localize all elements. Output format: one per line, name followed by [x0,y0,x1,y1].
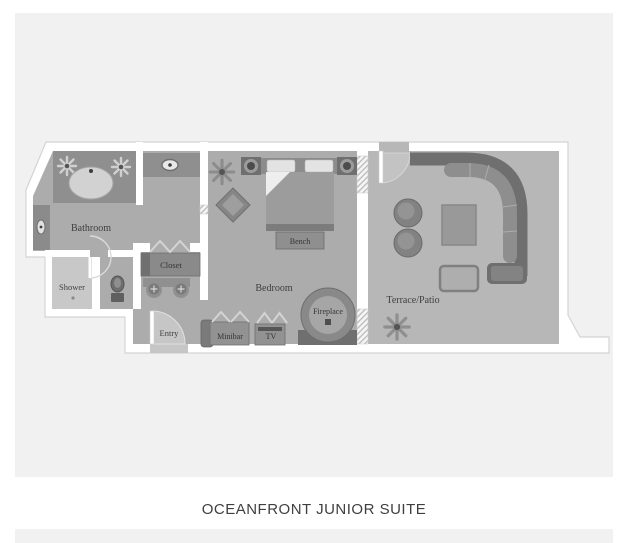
wall [45,250,90,257]
terrace-label: Terrace/Patio [386,295,439,306]
page: Bathroom Shower Closet Entry Minibar TV … [0,0,628,543]
sink-drain-icon [168,163,172,167]
wall [108,250,133,257]
minibar-label: Minibar [217,332,243,341]
wall [136,142,143,205]
bench-label: Bench [290,237,310,246]
bedroom-label: Bedroom [255,283,292,294]
plant-icon [112,158,130,176]
plant-icon [385,315,409,339]
ottoman-icon [440,266,478,291]
wall [200,243,208,300]
pillow-icon [305,160,333,172]
chair-cushion [398,233,415,250]
plant-icon [58,157,76,175]
bed-footboard [266,224,334,231]
nook-basin-drain-icon [40,226,43,229]
floor-plan-figure: Bathroom Shower Closet Entry Minibar TV … [0,0,628,543]
wall [133,243,150,252]
door-leaf [379,151,383,183]
entry-doorway [150,344,188,353]
tv-icon [258,327,282,331]
closet-cabinet-edge [141,253,150,276]
sofa-end-cushion [491,266,523,281]
bottom-section-band [15,529,613,543]
firebox-icon [325,319,331,325]
terrace-doorway [379,142,409,151]
shower-label: Shower [59,282,85,292]
tub-faucet-icon [89,169,93,173]
wall-vent-icon [200,205,208,214]
window-icon [357,309,368,344]
tv-label: TV [266,332,277,341]
table-icon [442,205,476,245]
shower-drain-icon [71,296,74,299]
chair-cushion [398,203,415,220]
plant-icon [210,160,233,183]
closet-label: Closet [160,260,182,270]
pillow-icon [267,160,295,172]
wall [200,142,208,250]
room-type-title: OCEANFRONT JUNIOR SUITE [0,501,628,518]
toilet-bowl-icon [114,278,121,288]
fireplace-label: Fireplace [313,307,343,316]
wall [133,250,141,309]
toilet-tank-icon [111,293,124,302]
lamp-icon [343,162,351,170]
bathroom-label: Bathroom [71,223,111,234]
wall [92,257,100,309]
entry-label: Entry [160,328,180,338]
door-leaf [150,311,154,344]
window-icon [357,156,368,193]
lamp-icon [247,162,255,170]
